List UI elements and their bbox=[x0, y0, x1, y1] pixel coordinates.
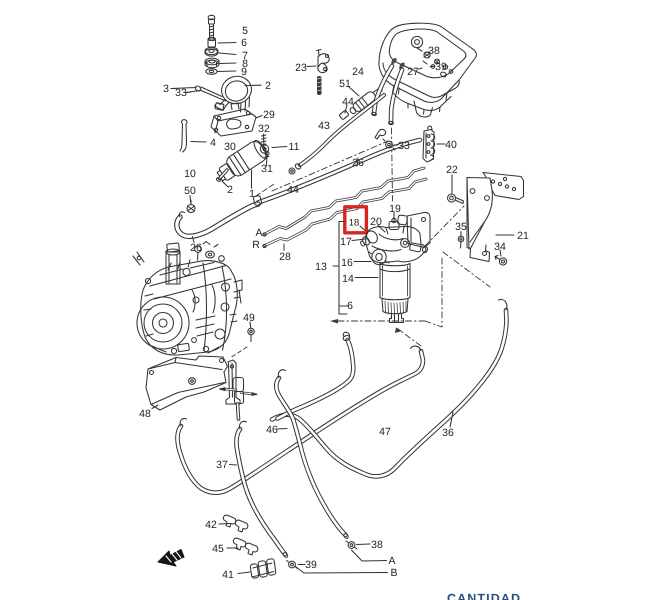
svg-text:16: 16 bbox=[341, 257, 353, 269]
svg-text:38: 38 bbox=[428, 45, 440, 57]
svg-text:9: 9 bbox=[241, 66, 247, 78]
svg-text:4: 4 bbox=[210, 137, 216, 149]
svg-text:39: 39 bbox=[435, 61, 447, 73]
svg-text:5: 5 bbox=[242, 25, 248, 37]
svg-text:21: 21 bbox=[517, 230, 529, 242]
svg-text:27: 27 bbox=[407, 66, 419, 78]
svg-text:40: 40 bbox=[445, 139, 457, 151]
svg-text:28: 28 bbox=[279, 251, 291, 263]
svg-text:B: B bbox=[390, 567, 397, 579]
svg-text:39: 39 bbox=[305, 559, 317, 571]
svg-text:33: 33 bbox=[398, 140, 410, 152]
svg-text:6: 6 bbox=[347, 300, 353, 312]
svg-text:46: 46 bbox=[266, 424, 278, 436]
svg-text:26: 26 bbox=[190, 242, 202, 254]
svg-text:24: 24 bbox=[352, 66, 364, 78]
svg-text:CANTIDAD: CANTIDAD bbox=[447, 592, 521, 600]
svg-text:35: 35 bbox=[455, 221, 467, 233]
svg-text:48: 48 bbox=[139, 408, 151, 420]
svg-text:51: 51 bbox=[339, 78, 351, 90]
svg-text:45: 45 bbox=[212, 543, 224, 555]
svg-text:43: 43 bbox=[318, 120, 330, 132]
svg-text:34: 34 bbox=[494, 241, 506, 253]
svg-text:36: 36 bbox=[442, 427, 454, 439]
svg-text:26: 26 bbox=[352, 157, 364, 169]
svg-text:33: 33 bbox=[175, 87, 187, 99]
svg-text:A: A bbox=[388, 555, 395, 567]
svg-text:47: 47 bbox=[379, 426, 391, 438]
svg-text:32: 32 bbox=[258, 123, 270, 135]
svg-text:19: 19 bbox=[389, 203, 401, 215]
svg-text:17: 17 bbox=[340, 236, 352, 248]
svg-text:R: R bbox=[252, 239, 260, 251]
svg-text:11: 11 bbox=[289, 141, 300, 153]
svg-text:2: 2 bbox=[227, 184, 233, 196]
svg-text:50: 50 bbox=[184, 185, 196, 197]
svg-text:1: 1 bbox=[249, 188, 255, 200]
svg-text:6: 6 bbox=[241, 37, 247, 49]
svg-text:29: 29 bbox=[263, 109, 275, 121]
svg-text:2: 2 bbox=[265, 80, 271, 92]
svg-text:14: 14 bbox=[342, 273, 354, 285]
svg-text:10: 10 bbox=[184, 168, 196, 180]
svg-text:41: 41 bbox=[222, 569, 234, 581]
svg-text:49: 49 bbox=[243, 312, 255, 324]
svg-text:30: 30 bbox=[224, 141, 236, 153]
svg-text:31: 31 bbox=[261, 163, 273, 175]
svg-text:A: A bbox=[255, 227, 262, 239]
svg-text:44: 44 bbox=[287, 184, 299, 196]
svg-text:42: 42 bbox=[205, 519, 217, 531]
svg-text:22: 22 bbox=[446, 164, 458, 176]
svg-text:20: 20 bbox=[370, 216, 382, 228]
svg-text:3: 3 bbox=[163, 83, 169, 95]
svg-text:18: 18 bbox=[349, 218, 360, 229]
svg-text:44: 44 bbox=[342, 96, 354, 108]
svg-text:23: 23 bbox=[295, 62, 307, 74]
svg-text:37: 37 bbox=[216, 459, 228, 471]
svg-text:38: 38 bbox=[371, 539, 383, 551]
svg-text:13: 13 bbox=[315, 261, 327, 273]
